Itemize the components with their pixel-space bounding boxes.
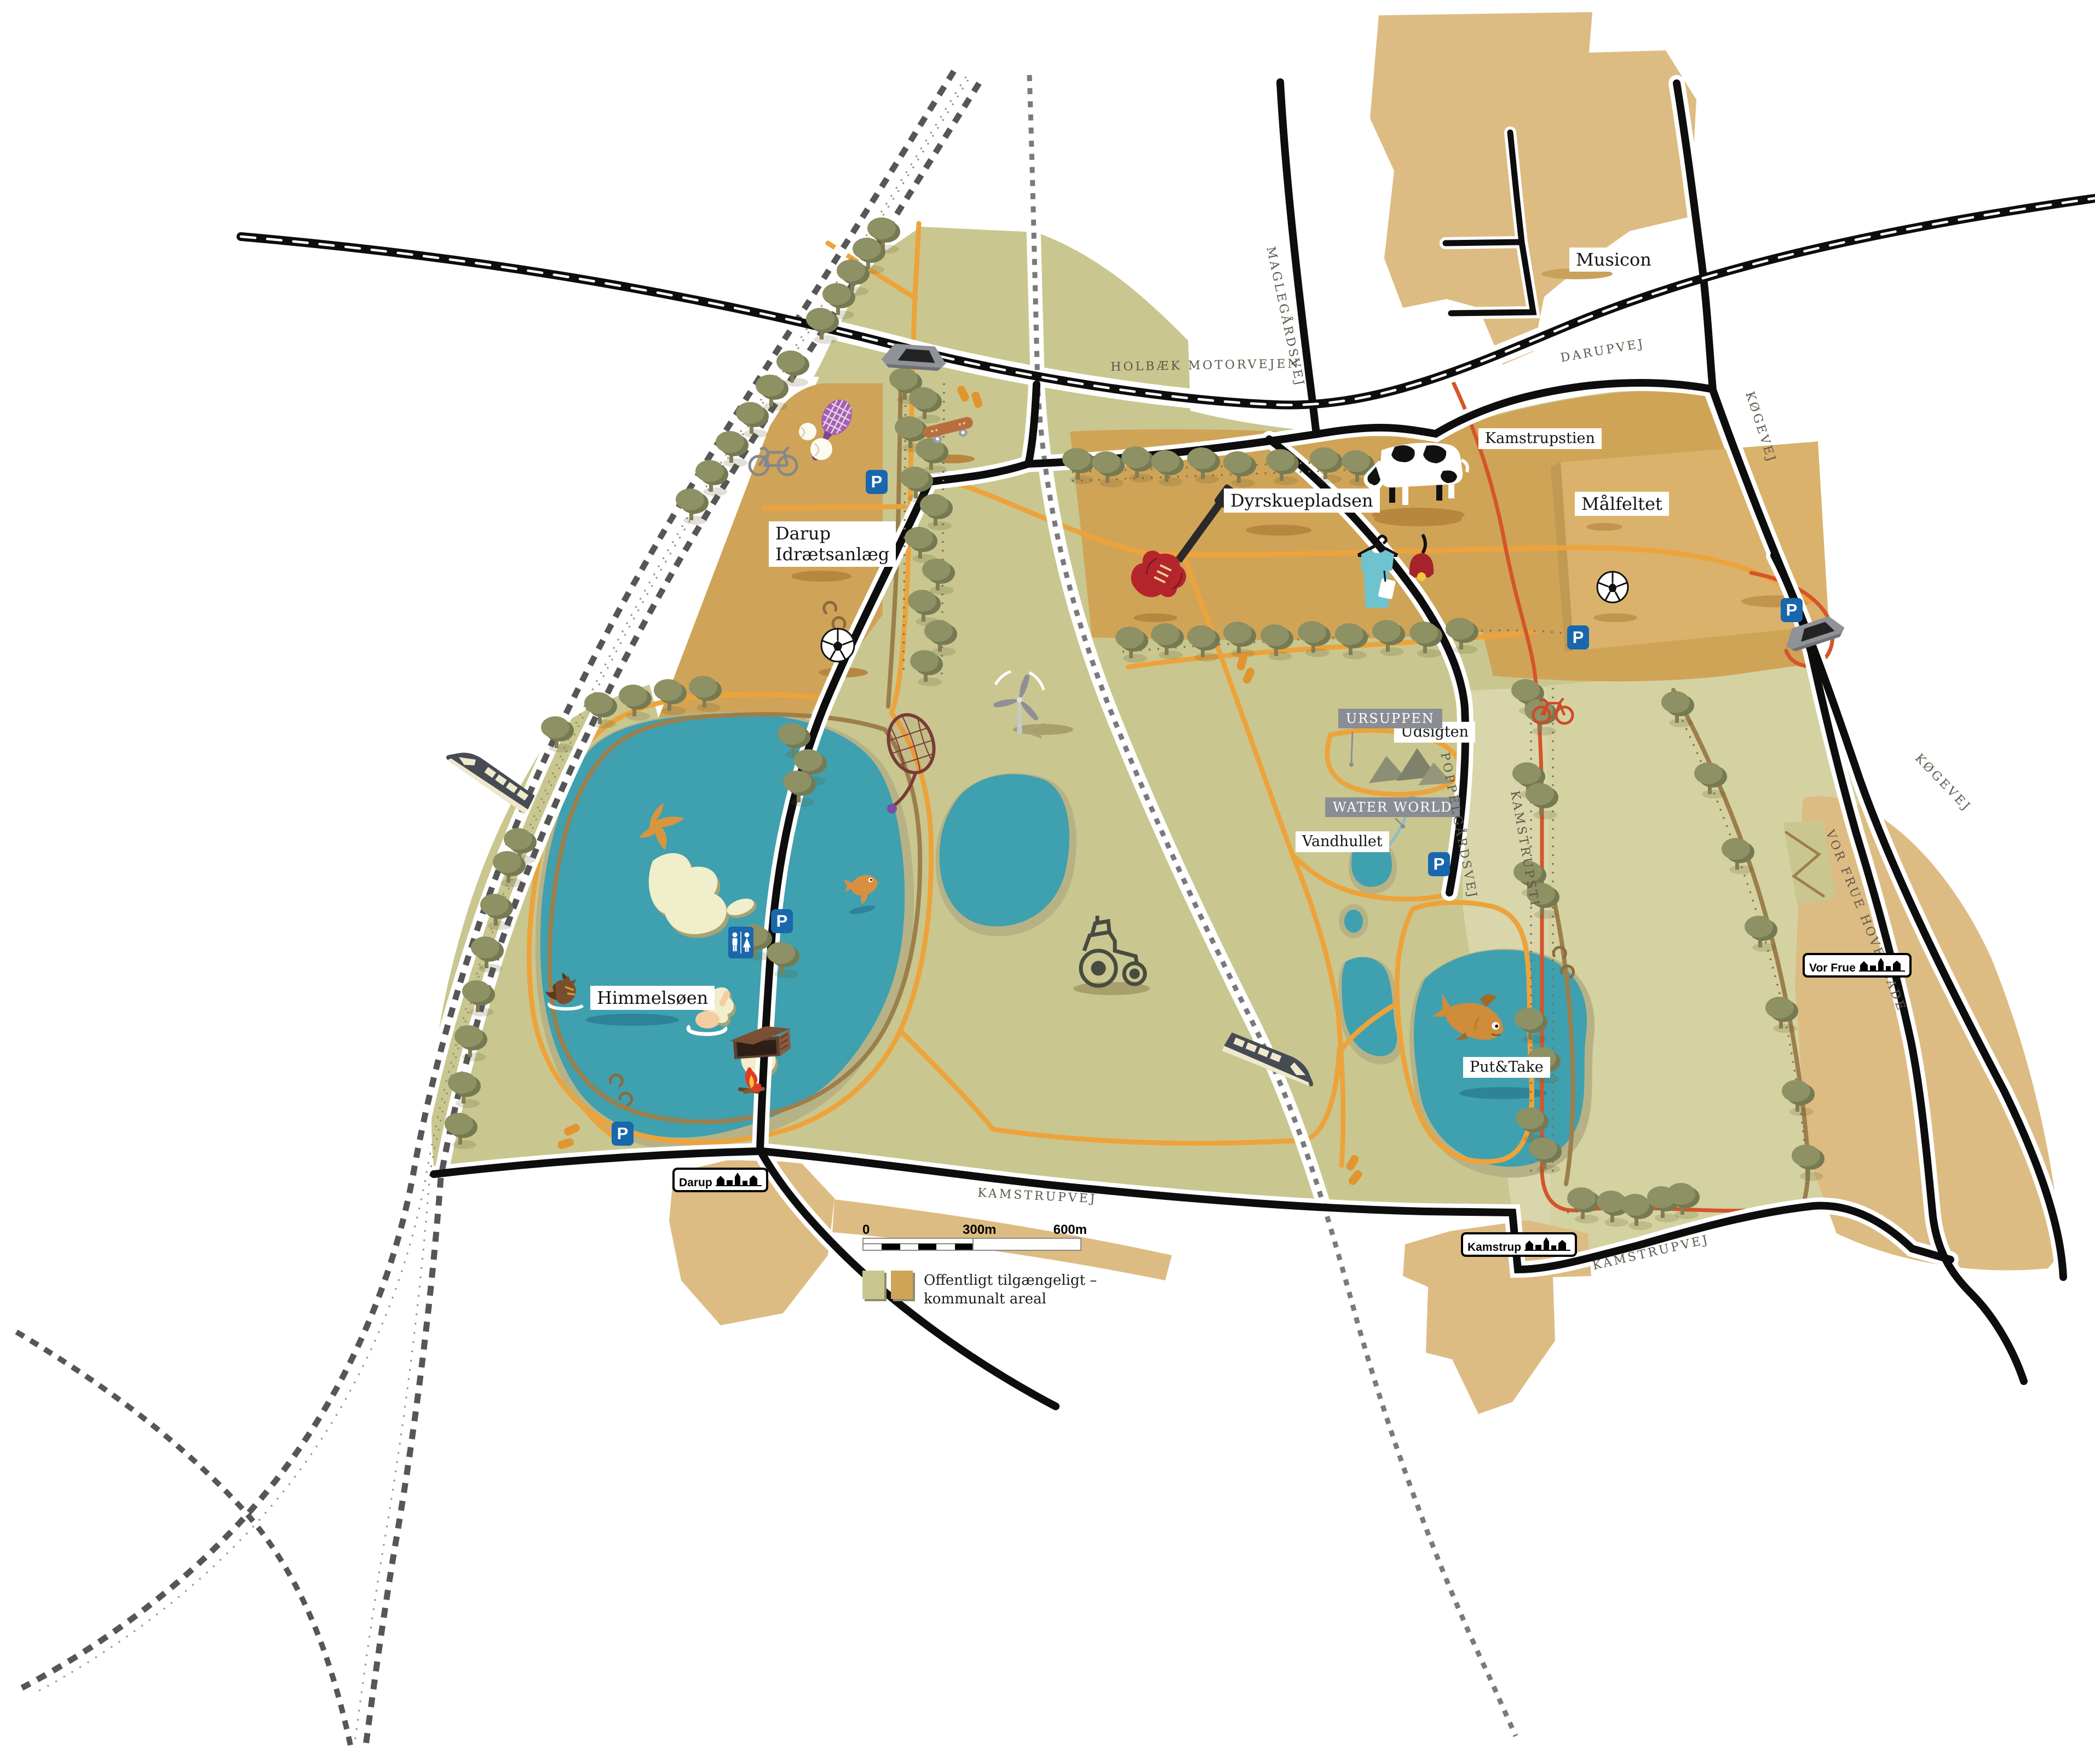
town-sign-kamstrup: Kamstrup xyxy=(1461,1232,1577,1257)
parking-icon: P xyxy=(1567,625,1589,650)
town-sign-label: Darup xyxy=(679,1176,712,1189)
parking-icon: P xyxy=(1781,598,1803,622)
parking-letter: P xyxy=(1573,628,1584,647)
town-sign-label: Vor Frue xyxy=(1809,962,1856,974)
scale-end: 600m xyxy=(1054,1222,1087,1238)
parking-letter: P xyxy=(617,1124,629,1144)
map-poster: Musicon Dyrskuepladsen Målfeltet Kamstru… xyxy=(0,0,2095,1764)
label-ursuppen: URSUPPEN xyxy=(1338,709,1442,728)
scale-bar: 0 300m 600m xyxy=(862,1222,1081,1251)
football-icon xyxy=(1597,572,1628,602)
parking-letter: P xyxy=(776,911,788,931)
legend-text-line1: Offentligt tilgængeligt – xyxy=(924,1272,1097,1290)
town-sign-vor-frue: Vor Frue xyxy=(1803,953,1912,978)
parking-letter: P xyxy=(1786,600,1798,620)
parking-letter: P xyxy=(871,472,883,492)
town-skyline-icon xyxy=(1524,1237,1570,1251)
town-skyline-icon xyxy=(716,1172,762,1186)
label-maalfeltet: Målfeltet xyxy=(1575,492,1669,516)
map-canvas xyxy=(0,0,2095,1764)
scale-zero: 0 xyxy=(862,1222,870,1238)
label-line: Darup xyxy=(775,523,889,544)
parking-icon: P xyxy=(612,1122,634,1146)
town-sign-label: Kamstrup xyxy=(1467,1241,1521,1254)
label-line: Idrætsanlæg xyxy=(775,544,889,565)
label-water-world: WATER WORLD xyxy=(1325,797,1460,817)
parking-icon: P xyxy=(866,470,888,494)
parking-icon: P xyxy=(771,909,793,933)
label-darup-idraetsanlaeg: Darup Idrætsanlæg xyxy=(769,521,896,567)
scale-bar-graphic xyxy=(862,1238,1081,1251)
legend-swatch-green xyxy=(862,1271,884,1299)
railway-branch-sw xyxy=(16,1332,350,1745)
scale-mid: 300m xyxy=(963,1222,996,1238)
train-icon xyxy=(445,741,537,814)
town-skyline-icon xyxy=(1859,957,1905,972)
legend-swatch-tan xyxy=(891,1271,913,1299)
parking-icon: P xyxy=(1428,852,1450,876)
legend-text-line2: kommunalt areal xyxy=(924,1290,1097,1309)
town-sign-darup: Darup xyxy=(672,1168,768,1192)
label-kamstrupstien: Kamstrupstien xyxy=(1478,428,1602,449)
label-vandhullet: Vandhullet xyxy=(1296,831,1389,852)
label-put-and-take: Put&Take xyxy=(1463,1057,1550,1078)
football-icon xyxy=(821,629,854,662)
toilet-icon xyxy=(728,927,753,958)
label-dyrskuepladsen: Dyrskuepladsen xyxy=(1224,489,1380,513)
label-himmelsoen: Himmelsøen xyxy=(590,986,715,1010)
path-sportsfield-divider xyxy=(763,507,905,508)
map-legend: Offentligt tilgængeligt – kommunalt area… xyxy=(862,1271,1097,1309)
label-musicon: Musicon xyxy=(1569,248,1658,272)
parking-letter: P xyxy=(1434,854,1445,874)
